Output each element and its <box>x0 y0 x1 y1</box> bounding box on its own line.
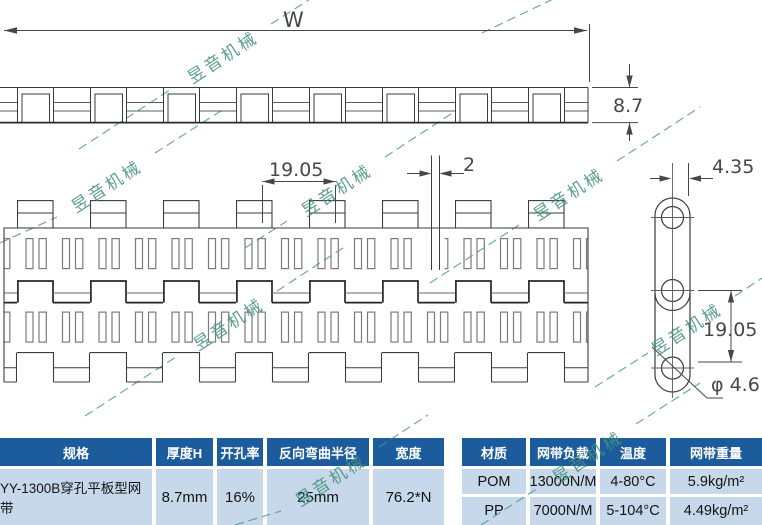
cell-open-rate: 16% <box>217 469 263 525</box>
edge-link-detail <box>651 163 694 398</box>
column-spec: 规格 YY-1300B穿孔平板型网带 <box>0 438 152 525</box>
dim-joint-gap-label: 2 <box>463 154 475 176</box>
column-temperature: 温度 4-80°C 5-104°C <box>600 438 666 525</box>
header-temperature: 温度 <box>600 438 666 466</box>
watermark-text: 昱音机械 <box>188 291 269 356</box>
header-weight: 网带重量 <box>670 438 762 466</box>
column-material: 材质 POM PP <box>462 438 526 525</box>
cell-load-pp: 7000N/M <box>530 497 596 525</box>
cell-temperature-pom: 4-80°C <box>600 469 666 494</box>
cell-weight-pp: 4.49kg/m² <box>670 497 762 525</box>
dim-pitch-plan-label: 19.05 <box>269 159 323 181</box>
watermark-text: 昱音机械 <box>182 24 263 89</box>
header-bend-radius: 反向弯曲半径 <box>267 438 369 466</box>
header-material: 材质 <box>462 438 526 466</box>
dim-overall-width-label: W <box>283 8 304 32</box>
cell-width: 76.2*N <box>373 469 444 525</box>
column-weight: 网带重量 5.9kg/m² 4.49kg/m² <box>670 438 762 525</box>
header-open-rate: 开孔率 <box>217 438 263 466</box>
column-load: 网带负载 13000N/M 7000N/M <box>530 438 596 525</box>
column-thickness: 厚度H 8.7mm <box>156 438 213 525</box>
cell-material-pom: POM <box>462 469 526 494</box>
dim-link-width-label: 4.35 <box>712 156 754 178</box>
page: W 8.7 19.05 2 4.35 19.05 φ 4.6 昱音机械 昱音机械… <box>0 0 762 525</box>
module-joint-gap <box>427 237 445 271</box>
cell-temperature-pp: 5-104°C <box>600 497 666 525</box>
watermark-text: 昱音机械 <box>528 161 609 226</box>
belt-side-view <box>0 87 588 124</box>
dim-thickness-label: 8.7 <box>613 95 643 117</box>
cell-spec-name: YY-1300B穿孔平板型网带 <box>0 469 152 525</box>
cell-thickness: 8.7mm <box>156 469 213 525</box>
spec-table: 规格 YY-1300B穿孔平板型网带 厚度H 8.7mm 开孔率 16% 反向弯… <box>0 438 762 525</box>
hinge-hole-middle <box>662 280 684 302</box>
belt-plan-view <box>4 156 588 383</box>
column-open-rate: 开孔率 16% <box>217 438 263 525</box>
dim-link-pitch-label: 19.05 <box>703 319 757 341</box>
dimensions <box>4 24 742 398</box>
cell-load-pom: 13000N/M <box>530 469 596 494</box>
header-load: 网带负载 <box>530 438 596 466</box>
watermark-text: 昱音机械 <box>66 153 147 218</box>
column-bend-radius: 反向弯曲半径 25mm <box>267 438 369 525</box>
header-width: 宽度 <box>373 438 444 466</box>
watermark-text: 昱音机械 <box>646 296 727 361</box>
header-thickness: 厚度H <box>156 438 213 466</box>
hinge-hole-bottom <box>662 357 684 379</box>
cell-weight-pom: 5.9kg/m² <box>670 469 762 494</box>
header-spec: 规格 <box>0 438 152 466</box>
cell-bend-radius: 25mm <box>267 469 369 525</box>
dim-hole-diameter-label: φ 4.6 <box>711 374 760 396</box>
cell-material-pp: PP <box>462 497 526 525</box>
watermark-text: 昱音机械 <box>296 157 377 222</box>
column-width: 宽度 76.2*N <box>373 438 444 525</box>
hinge-hole-top <box>662 207 684 229</box>
